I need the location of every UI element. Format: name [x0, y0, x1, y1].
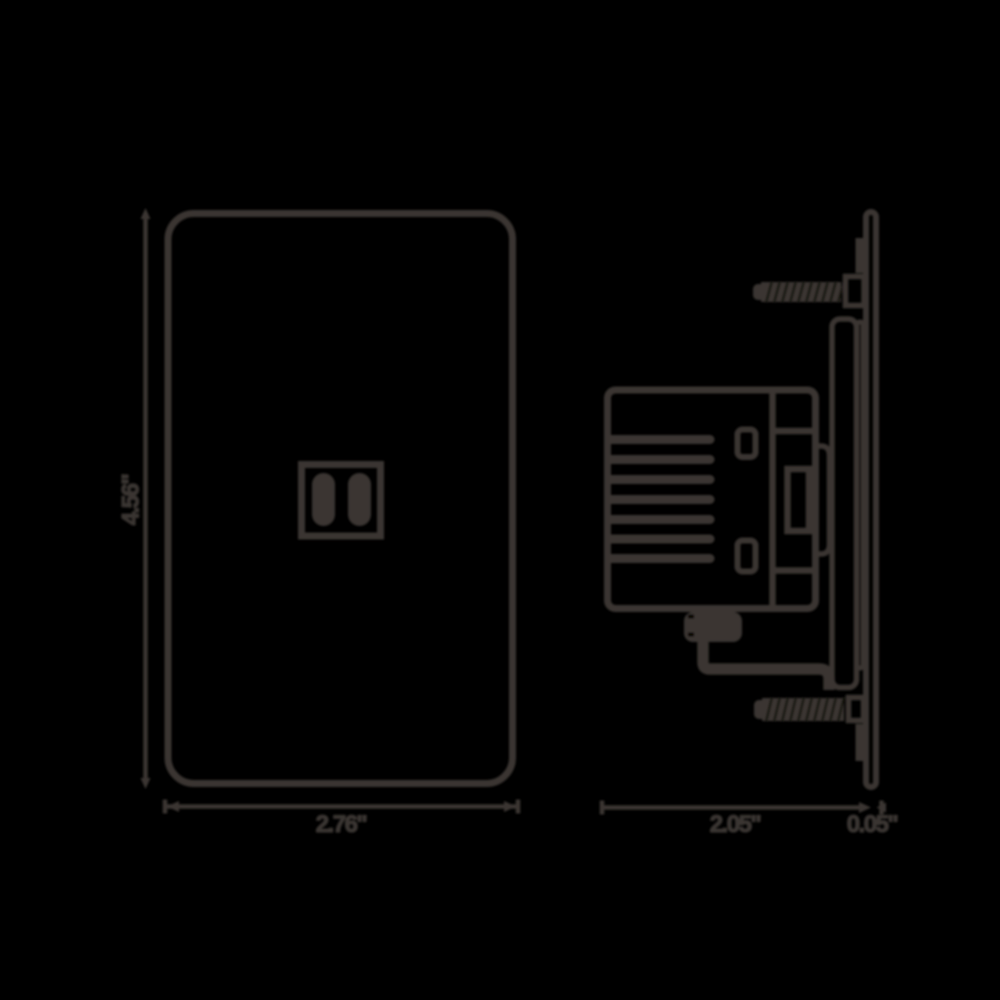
svg-text:2.05": 2.05": [710, 811, 761, 838]
svg-text:2.76": 2.76": [316, 811, 367, 838]
svg-text:0.05": 0.05": [847, 811, 898, 838]
svg-text:4.56": 4.56": [118, 475, 145, 526]
